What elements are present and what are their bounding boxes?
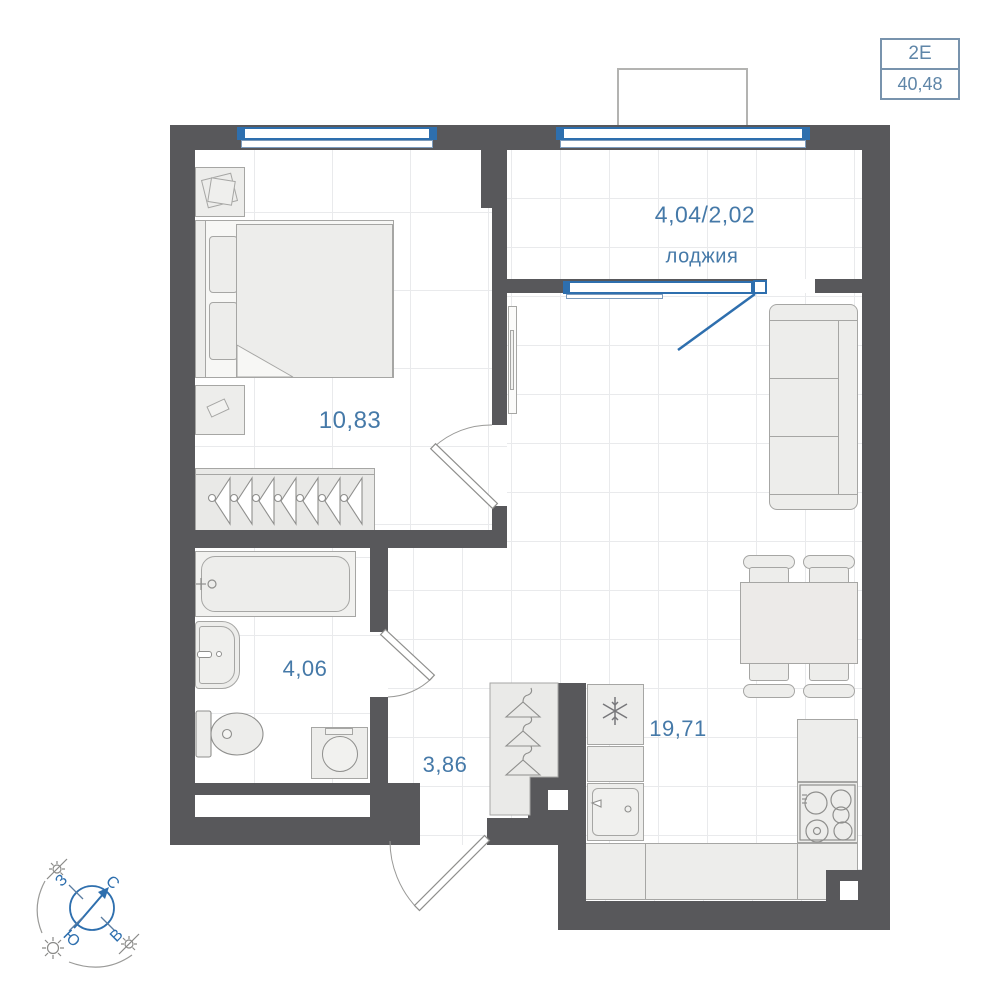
wall-notch [840, 881, 858, 900]
chair-seat [809, 661, 849, 681]
compass-east-label: В [107, 926, 127, 946]
wall-bathroom-right-upper [370, 548, 388, 632]
sofa-back-line [838, 321, 839, 494]
bathtub-inner [201, 556, 350, 612]
bath-sink-faucet [197, 651, 212, 658]
bed-headboard [195, 220, 206, 378]
compass-west-label: З [52, 871, 71, 890]
pillow [209, 302, 238, 360]
sunrise-icon [47, 859, 67, 879]
sun-path-arc [37, 881, 45, 933]
kitchen-sink-basin [592, 788, 639, 836]
window-cap [237, 127, 245, 140]
wall-right [862, 125, 890, 930]
chair-seat [749, 661, 789, 681]
compass: З С Ю В [37, 859, 139, 967]
chair [803, 684, 855, 698]
window-sill [560, 140, 806, 148]
kitchen-area-label: 19,71 [649, 716, 707, 742]
compass-south-label: Ю [59, 927, 82, 950]
tv-unit-inner [510, 330, 514, 390]
counter-seam [797, 844, 798, 899]
wall-bathroom-right-lower [370, 697, 388, 787]
wardrobe [195, 468, 375, 532]
floor-plan: 4,04/2,02 лоджия 10,83 4,06 3,86 19,71 [0, 0, 1000, 1000]
wall-bedroom-living-top [481, 150, 507, 208]
sofa-seat-line [770, 436, 838, 437]
counter-seam [645, 844, 646, 899]
window-cap [429, 127, 437, 140]
entrance-door [390, 836, 489, 911]
kitchen-counter-mid [587, 746, 644, 782]
balcony-door-opening [767, 279, 815, 293]
exterior-pylon [617, 68, 748, 127]
bath-sink-drain [216, 651, 222, 657]
window-cap [563, 281, 570, 294]
balcony-door-hinge [753, 280, 767, 294]
wall-notch [548, 790, 568, 810]
compass-north-label: С [102, 873, 122, 893]
bedroom-area-label: 10,83 [319, 407, 382, 435]
bathroom-area-label: 4,06 [283, 656, 328, 682]
loggia-area-label: 4,04/2,02 [655, 202, 755, 229]
sofa-seat-line [770, 378, 838, 379]
sun-path-arc [69, 955, 132, 967]
compass-needle [74, 893, 104, 928]
wall-bottom-right [558, 901, 890, 930]
partition-window [563, 281, 753, 294]
bed-blanket [236, 224, 393, 378]
kitchen-counter-right [797, 719, 858, 782]
unit-total-area: 40,48 [882, 70, 958, 98]
sunset-icon [119, 934, 139, 954]
window-cap [802, 127, 810, 140]
fridge [587, 684, 644, 745]
loggia-name-label: лоджия [666, 246, 739, 269]
compass-needle-head [98, 887, 109, 899]
bedroom-window [237, 127, 437, 140]
wall-bedroom-bottom [170, 530, 507, 548]
compass-circle [70, 886, 114, 930]
hallway-area-label: 3,86 [423, 752, 468, 778]
unit-type: 2Е [882, 40, 958, 70]
kitchen-counter-bottom [585, 843, 858, 900]
sofa [769, 304, 858, 510]
washing-machine-drum [322, 736, 358, 772]
nightstand-lamp-inner [207, 177, 236, 206]
window-cap [556, 127, 564, 140]
washing-machine-detergent [325, 728, 353, 735]
sofa-armrest-line [770, 494, 857, 495]
wall-left [170, 125, 195, 845]
wardrobe-rail [196, 474, 374, 475]
wall-bedroom-door-stub [492, 506, 507, 548]
sofa-armrest-line [770, 320, 857, 321]
pillow [209, 236, 238, 293]
loggia-window [556, 127, 810, 140]
sun-icon [42, 937, 64, 959]
dining-table [740, 582, 858, 664]
wall-niche [195, 795, 370, 817]
chair [743, 684, 795, 698]
window-sill [566, 294, 663, 299]
wall-hall-bottom [487, 818, 558, 845]
unit-badge: 2Е 40,48 [880, 38, 960, 100]
stove [797, 782, 858, 843]
window-sill [241, 140, 433, 148]
